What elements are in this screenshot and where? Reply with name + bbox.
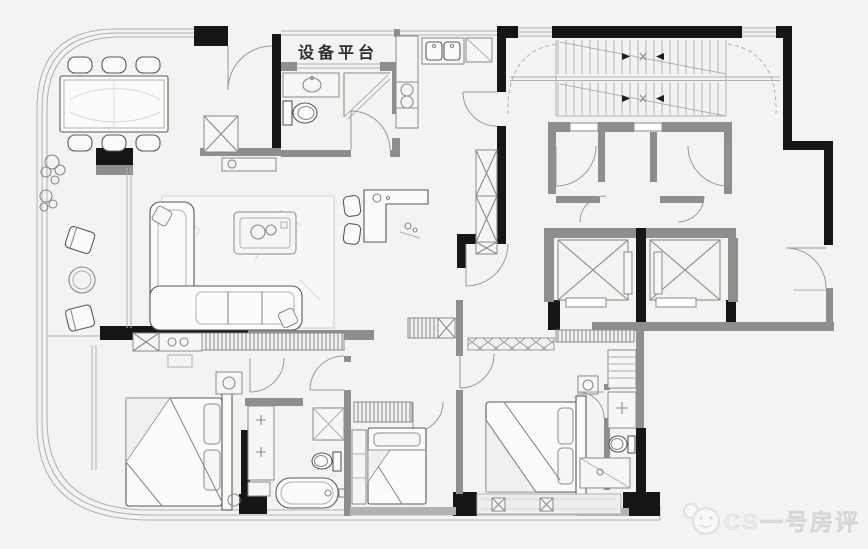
bathtub xyxy=(276,478,345,508)
bed-2 xyxy=(368,428,426,504)
stairwell xyxy=(508,40,780,116)
dining-table xyxy=(60,76,168,132)
watermark: CS一号房评 CS一号房评 xyxy=(684,504,861,536)
watermark-logo-icon xyxy=(684,504,719,534)
elevator-lobby xyxy=(556,123,728,222)
kitchen-sink xyxy=(422,38,464,64)
shower xyxy=(580,458,630,488)
shower xyxy=(313,408,344,440)
coffee-table xyxy=(234,212,296,254)
lounge-chair xyxy=(64,226,96,255)
master-bed xyxy=(126,394,232,510)
watermark-text: CS一号房评 xyxy=(724,509,860,535)
stove xyxy=(396,82,418,108)
lounge-chair xyxy=(65,304,96,332)
equipment-platform: 设备平台 xyxy=(297,43,380,68)
bedroom-2 xyxy=(352,402,443,504)
equipment-platform-label: 设备平台 xyxy=(298,43,378,62)
balcony xyxy=(40,155,131,332)
bed-3 xyxy=(486,396,586,498)
toilet xyxy=(283,101,317,125)
kitchen xyxy=(343,36,497,254)
floor-plan-svg: 设备平台 xyxy=(0,0,868,549)
side-table xyxy=(69,267,95,293)
master-bathroom xyxy=(248,356,345,508)
toilet xyxy=(609,436,635,453)
plants xyxy=(40,155,65,211)
laundry-cabinet xyxy=(408,318,455,338)
toilet xyxy=(312,452,341,471)
tall-cabinets xyxy=(476,150,497,254)
bar-stool xyxy=(343,195,362,217)
corridor-door-right xyxy=(786,248,826,290)
bay-window-seat xyxy=(477,494,621,514)
bathroom-1 xyxy=(283,73,390,150)
bar-stool xyxy=(343,223,362,245)
dining-area xyxy=(60,57,168,151)
floor-plan-image: 设备平台 xyxy=(0,0,868,549)
kitchen-island xyxy=(343,190,428,245)
living-room xyxy=(150,196,334,330)
